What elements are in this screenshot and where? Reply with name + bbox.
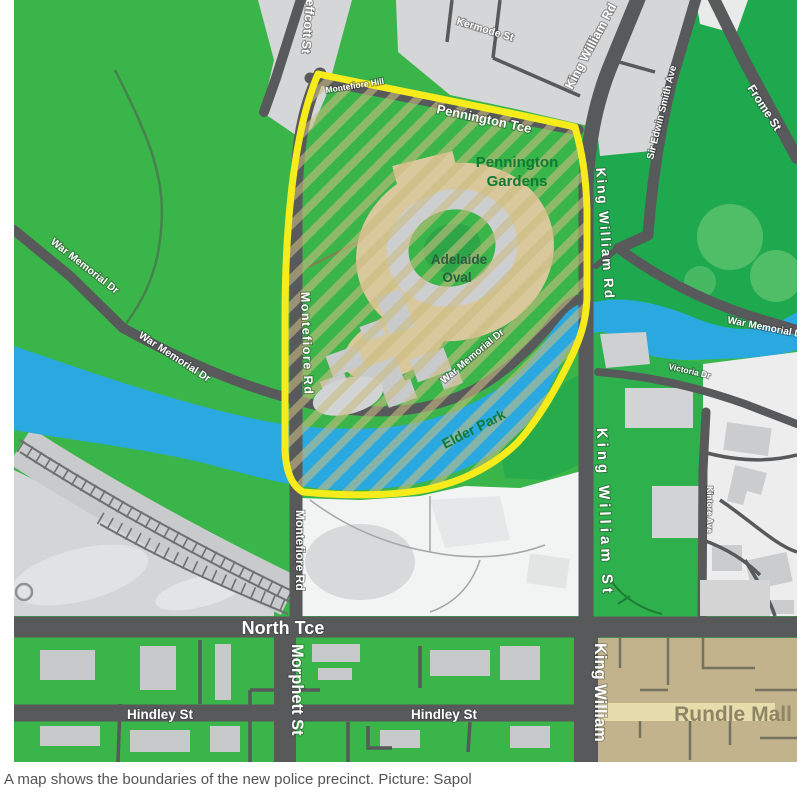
label-kintore-ave: Kintore Ave [705,486,715,533]
label-north-tce: North Tce [242,618,325,638]
label-montefiore-rd-lower: Montefiore Rd [293,510,307,591]
label-hindley-st-1: Hindley St [127,707,194,722]
label-pennington-gardens-2: Gardens [487,173,548,190]
precinct-map-figure: Jeffcott St Kermode St King William Rd S… [0,0,807,762]
label-adelaide-oval-2: Oval [442,270,471,285]
label-adelaide-oval-1: Adelaide [431,252,488,267]
label-morphett-st: Morphett St [288,644,306,736]
label-king-william-bottom: King William [591,643,609,742]
label-rundle-mall: Rundle Mall [674,703,792,726]
precinct-map: Jeffcott St Kermode St King William Rd S… [0,0,807,762]
label-hindley-st-2: Hindley St [411,707,478,722]
label-pennington-gardens-1: Pennington [476,154,559,171]
figure-caption: A map shows the boundaries of the new po… [0,762,807,788]
